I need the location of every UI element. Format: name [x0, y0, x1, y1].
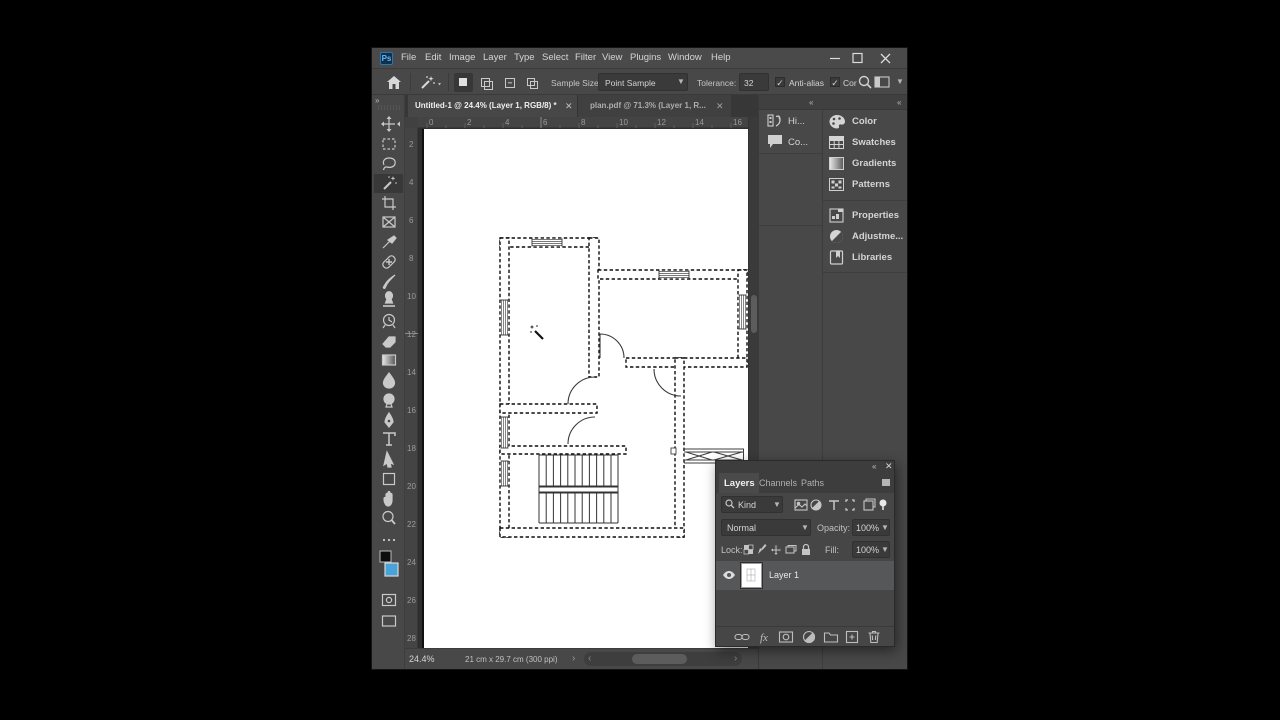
svg-text:fx: fx — [760, 632, 768, 644]
